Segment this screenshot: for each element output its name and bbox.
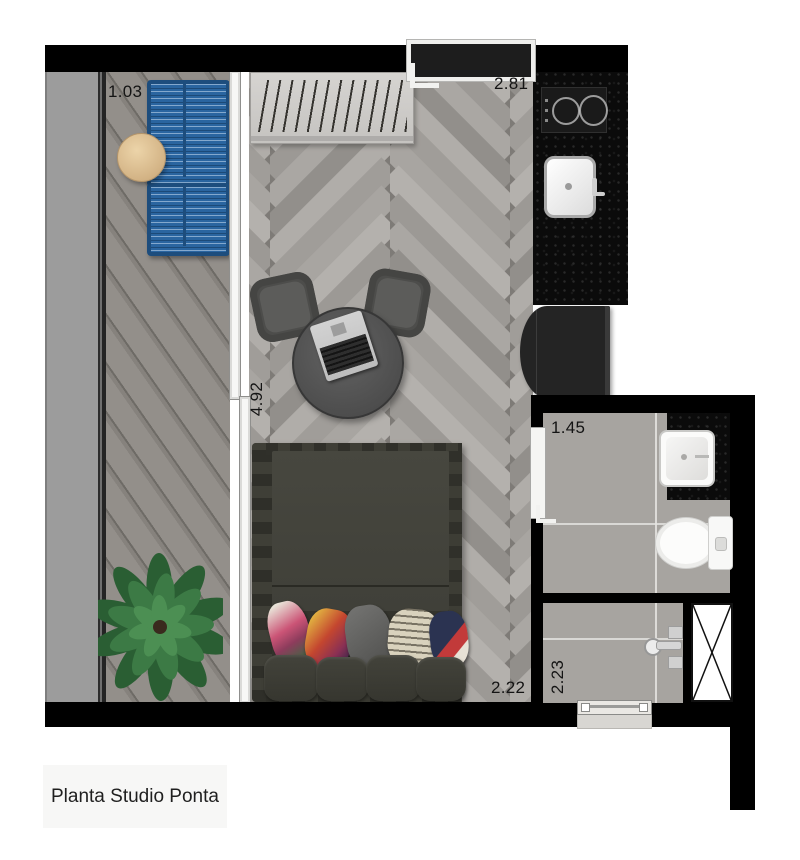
toilet-tank	[708, 516, 733, 570]
kitchen-sink-drain	[565, 183, 572, 190]
entry-door-track	[581, 705, 648, 708]
cooktop-knobs	[545, 96, 548, 122]
dim-living-width: 2.22	[491, 678, 525, 698]
bed-duvet	[272, 451, 449, 611]
pillow-olive-1	[264, 655, 318, 701]
bed	[252, 443, 462, 702]
shaft-box	[691, 603, 733, 702]
fridge-seam	[536, 310, 537, 394]
pillow-olive-3	[366, 655, 420, 701]
wardrobe	[250, 72, 414, 144]
toilet-flush-button	[715, 537, 727, 551]
floor-plan: 1.03 2.81 4.92 1.45 2.22 2.23 Planta Stu…	[0, 0, 800, 860]
entry-door-handle-right	[639, 703, 648, 712]
bed-duvet-fold	[272, 585, 449, 587]
shower-grout-horizontal	[543, 638, 683, 640]
entry-door-leaf	[577, 700, 652, 715]
dim-kitchen-width: 2.81	[494, 74, 528, 94]
entry-door-handle-left	[581, 703, 590, 712]
pillow-olive-2	[316, 657, 368, 701]
kitchen-sink	[544, 156, 596, 218]
dim-bathroom-width: 1.45	[551, 418, 585, 438]
lounger-1-divider	[183, 82, 186, 177]
cooktop-burner-2	[579, 95, 608, 126]
plan-caption-text: Planta Studio Ponta	[51, 786, 219, 808]
balcony-slab	[45, 70, 100, 703]
window-bracket	[410, 63, 439, 88]
bathroom-wall-top	[531, 395, 730, 413]
wall-top	[45, 45, 628, 72]
bathroom-sink-drain	[681, 454, 687, 460]
wall-right	[730, 395, 755, 810]
bathroom-faucet	[695, 455, 709, 458]
lounger-2	[147, 183, 230, 256]
wall-bottom-right	[650, 702, 730, 727]
bathroom-sink	[659, 430, 715, 487]
bathroom-door-bracket	[536, 505, 556, 523]
shower-valve-bottom	[668, 656, 683, 669]
plant	[98, 550, 223, 705]
dim-shower-width: 2.23	[548, 660, 568, 694]
plan-caption: Planta Studio Ponta	[43, 765, 227, 828]
side-table	[117, 133, 166, 182]
wall-bottom-left	[45, 702, 577, 727]
wardrobe-shelf	[251, 136, 413, 141]
cooktop-burner-1	[552, 97, 580, 125]
cooktop	[541, 87, 607, 133]
dim-balcony-width: 1.03	[108, 82, 142, 102]
dim-living-length: 4.92	[247, 382, 267, 416]
lounger-2-divider	[183, 185, 186, 246]
laptop-lid-badge	[330, 322, 347, 337]
bathroom-divider-wall	[543, 593, 683, 603]
glass-partition-panel-2	[239, 396, 251, 704]
pillow-olive-4	[416, 657, 466, 701]
fridge	[520, 306, 610, 398]
shower-valve-top	[668, 626, 683, 639]
wardrobe-hangers	[257, 80, 407, 132]
laptop-keyboard	[320, 334, 374, 375]
bathroom-grout-vertical	[655, 413, 657, 593]
kitchen-faucet-arm	[592, 192, 605, 196]
shower-arm	[656, 641, 682, 650]
glass-partition-panel-1	[229, 70, 241, 400]
bathroom-sink-basin	[666, 437, 708, 480]
